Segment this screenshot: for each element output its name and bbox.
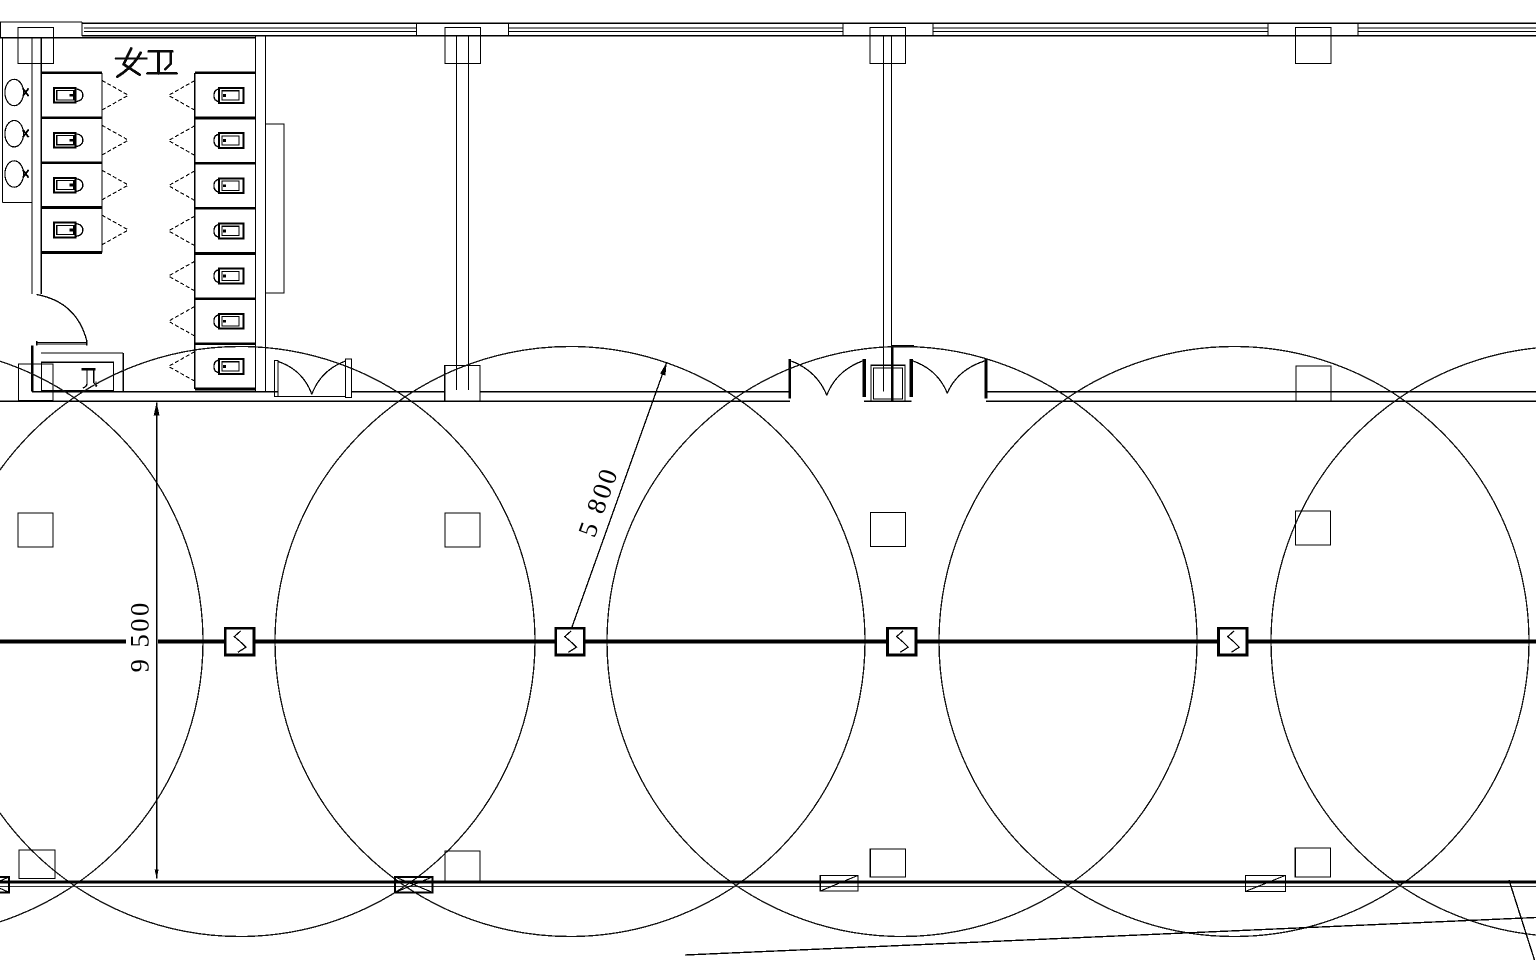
svg-text:9 500: 9 500 [125, 600, 155, 672]
